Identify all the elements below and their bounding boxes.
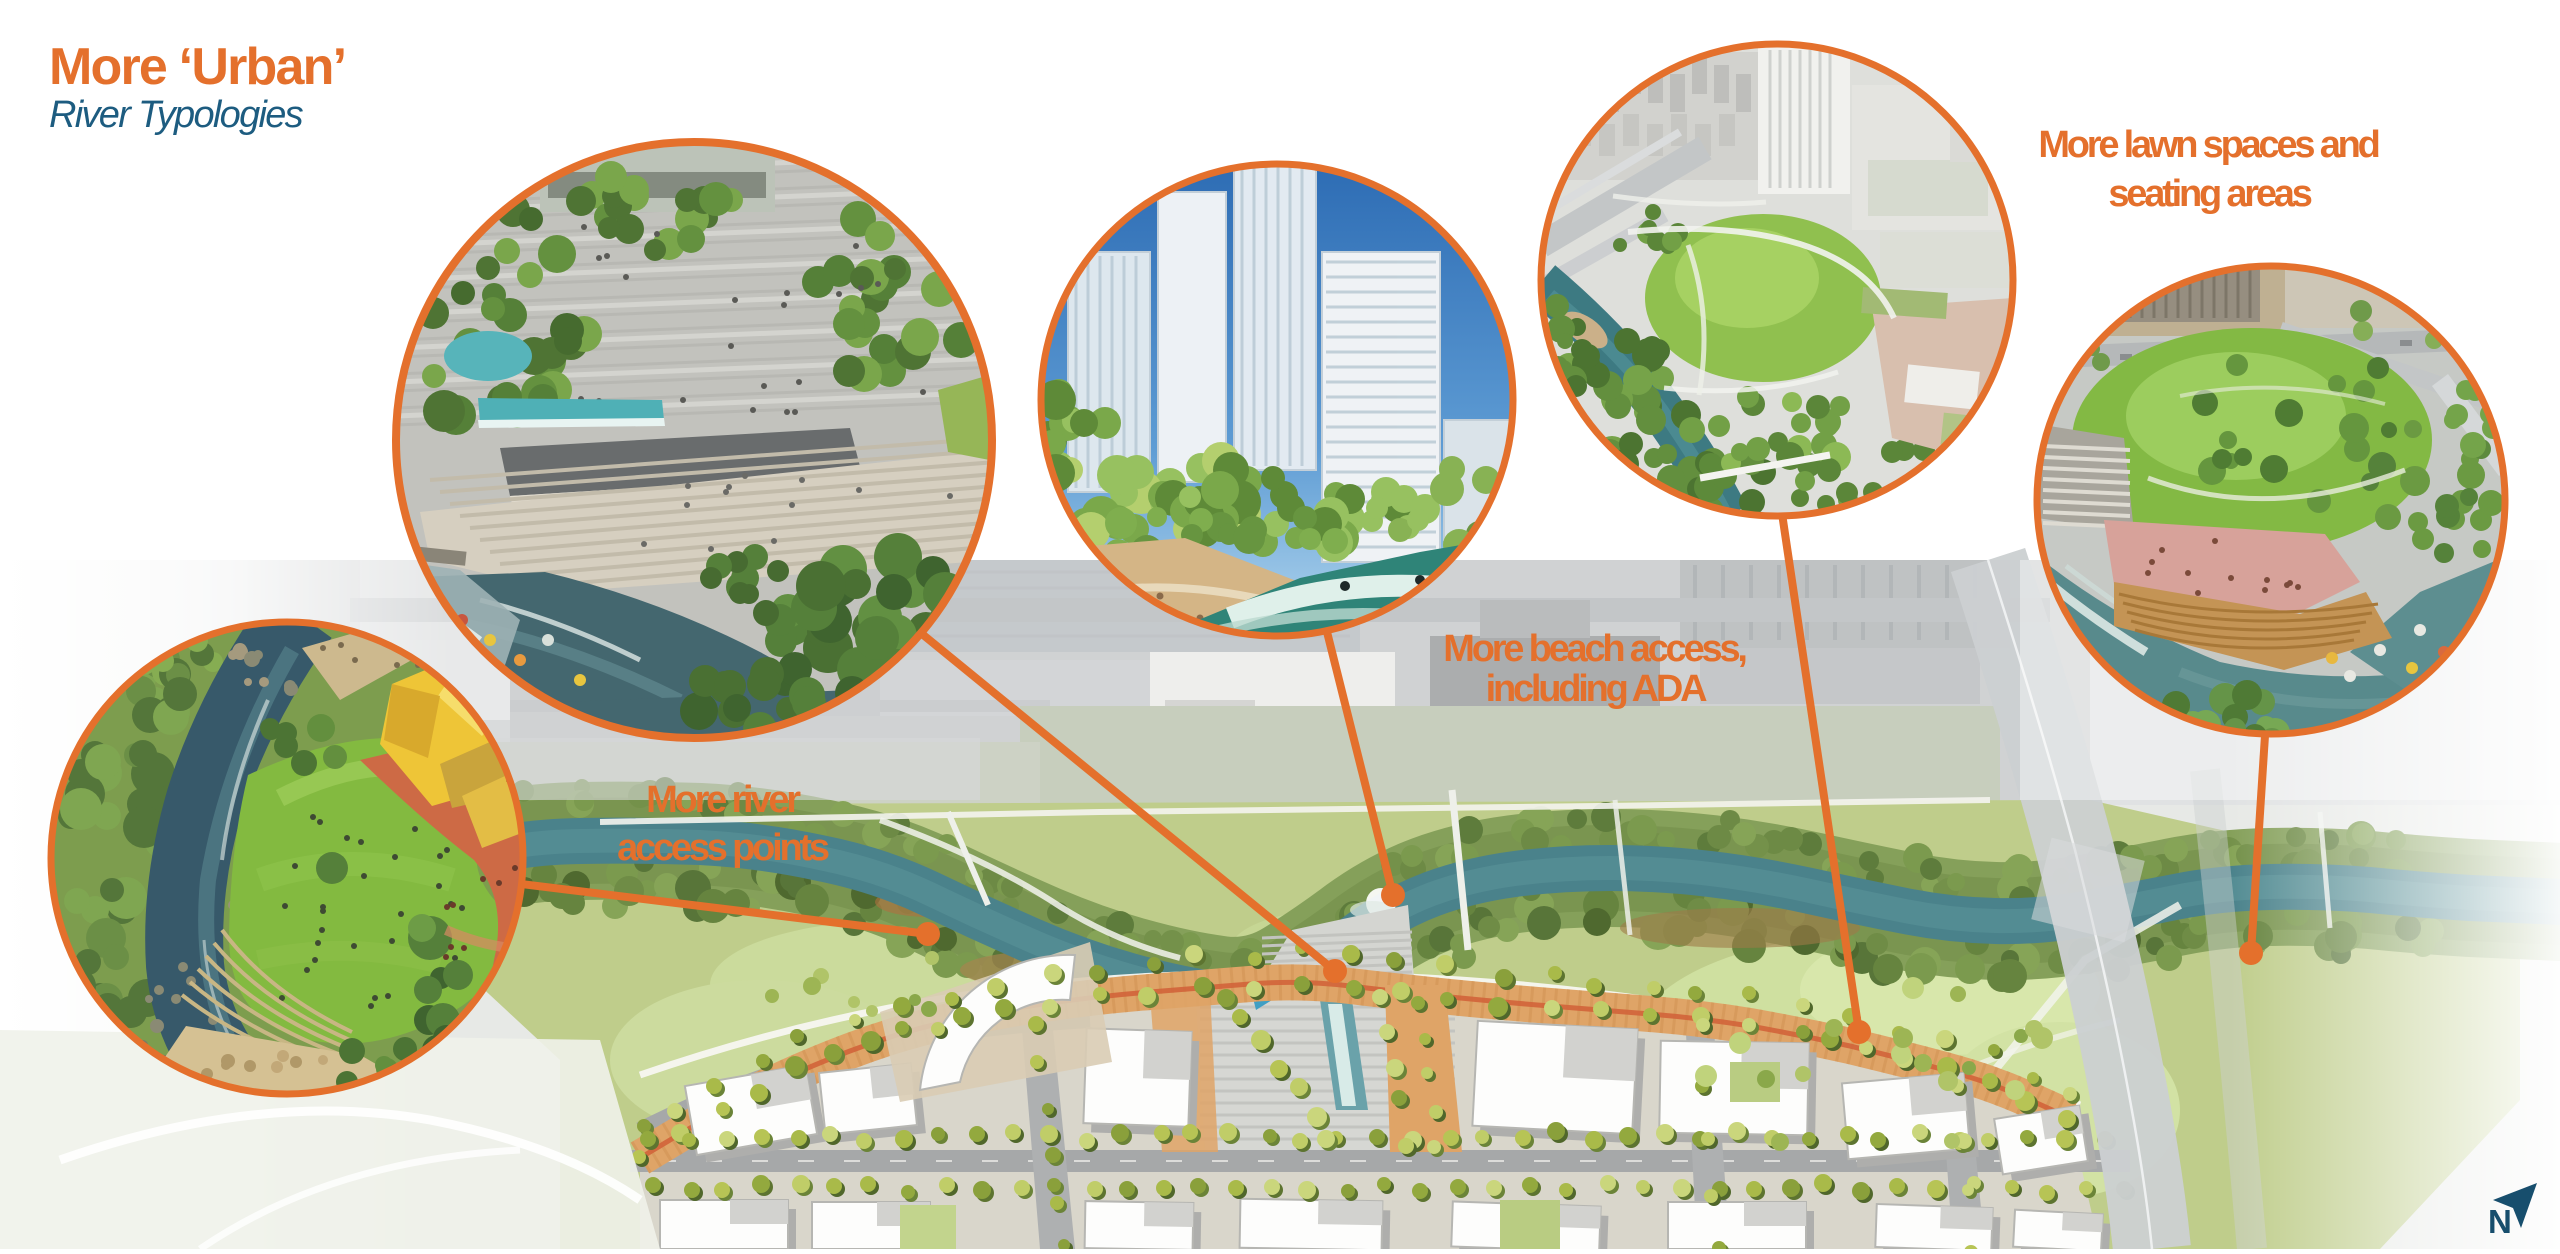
svg-text:N: N xyxy=(2488,1203,2512,1240)
svg-text:More river: More river xyxy=(646,779,801,821)
svg-text:More ‘Urban’: More ‘Urban’ xyxy=(49,38,345,96)
svg-text:seating areas: seating areas xyxy=(2108,173,2311,215)
svg-text:More beach access,: More beach access, xyxy=(1443,628,1746,670)
svg-text:More lawn spaces and: More lawn spaces and xyxy=(2038,124,2378,166)
svg-text:including ADA: including ADA xyxy=(1486,668,1707,710)
svg-text:access points: access points xyxy=(617,827,829,869)
svg-text:River Typologies: River Typologies xyxy=(49,94,304,136)
